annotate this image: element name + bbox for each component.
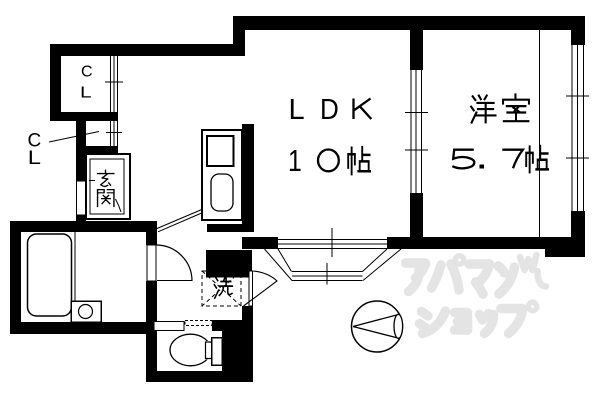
svg-text:L: L	[289, 94, 305, 126]
svg-text:L: L	[80, 83, 92, 101]
svg-text:D: D	[320, 93, 339, 126]
svg-text:1: 1	[288, 143, 302, 177]
svg-text:C: C	[81, 64, 93, 81]
svg-text:L: L	[28, 147, 41, 168]
